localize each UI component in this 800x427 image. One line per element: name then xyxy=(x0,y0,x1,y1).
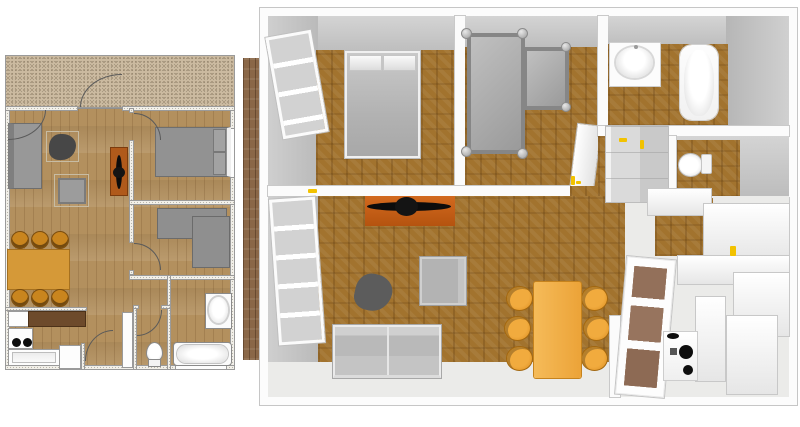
stove-burner-large xyxy=(679,345,693,359)
corner-bed-b-3d xyxy=(523,47,569,110)
kitchen-stove-2d xyxy=(8,328,33,349)
floor-plan-canvas xyxy=(0,0,800,427)
kitchen-wall-cabinet xyxy=(704,204,789,260)
stove-knob xyxy=(670,348,677,355)
wall-bed2-bath xyxy=(129,275,235,280)
bath-sink-3d xyxy=(610,43,660,86)
dining-table-2d xyxy=(8,250,69,289)
double-bed-3d xyxy=(345,51,420,158)
bath-wall-right xyxy=(726,16,789,126)
wall-wc-top-a xyxy=(133,305,139,309)
light-switch xyxy=(571,176,575,185)
double-bed-2d xyxy=(155,127,231,177)
bathtub-3d xyxy=(680,45,718,120)
fan-hub-2d xyxy=(113,167,125,178)
kitchen-cabinet-top xyxy=(648,189,711,215)
dining-chair-2d xyxy=(51,231,69,249)
sofa-3d xyxy=(333,325,441,378)
wall-bed2-bath-3d xyxy=(598,16,608,136)
kitchen-cabinet-2d xyxy=(59,345,81,369)
kitchen-base-cabinet xyxy=(727,316,777,394)
wall-living-bedrooms xyxy=(129,140,134,243)
bedpost xyxy=(461,28,472,39)
wall-bed1-bed2-3d xyxy=(455,16,465,190)
wall-bed1-bed2 xyxy=(129,200,235,205)
light-switch xyxy=(619,138,627,142)
light-switch xyxy=(640,140,644,149)
armchair-3d xyxy=(420,257,466,305)
dining-chair-2d xyxy=(31,289,49,307)
wall-balcony-right xyxy=(122,106,235,111)
dining-chair-2d xyxy=(51,289,69,307)
wall-wc-top-b xyxy=(161,305,171,309)
light-switch xyxy=(308,189,317,193)
floor-plan-2d-view xyxy=(5,55,235,370)
wall-bath-wc xyxy=(167,275,171,370)
hall-cabinet-2d xyxy=(122,312,133,368)
dining-chair-3d xyxy=(504,316,531,341)
floor-plan-3d-view xyxy=(240,0,800,427)
bedpost xyxy=(461,146,472,157)
dining-chair-2d xyxy=(11,231,29,249)
dining-chair-2d xyxy=(31,231,49,249)
fan-hub-3d xyxy=(395,197,418,216)
bedpost xyxy=(517,148,528,159)
pouf-2d xyxy=(58,178,86,204)
stove-burner-small xyxy=(683,365,693,375)
kitchen-sink-counter-2d xyxy=(8,349,60,366)
bathtub-2d xyxy=(173,342,232,366)
dining-chair-3d xyxy=(506,286,533,311)
kitchen-item-yellow xyxy=(730,246,736,256)
dining-chair-3d xyxy=(581,346,608,371)
bedpost xyxy=(517,28,528,39)
dining-chair-3d xyxy=(506,346,533,371)
toilet-3d xyxy=(678,150,712,178)
stove-panel xyxy=(667,333,679,339)
corner-bed-a-3d xyxy=(467,33,525,154)
dining-chair-3d xyxy=(581,286,608,311)
bedpost xyxy=(561,102,571,112)
corner-bed-b-2d xyxy=(192,216,230,268)
kitchen-side-cabinet xyxy=(696,297,725,381)
dining-table-3d xyxy=(534,282,581,378)
bath-sink-2d xyxy=(205,293,232,329)
bedpost xyxy=(561,42,571,52)
bed2-door-handle xyxy=(576,181,581,184)
dining-chair-3d xyxy=(583,316,610,341)
dining-chair-2d xyxy=(11,289,29,307)
kitchen-counter-brown xyxy=(28,311,86,327)
toilet-2d xyxy=(143,342,164,367)
